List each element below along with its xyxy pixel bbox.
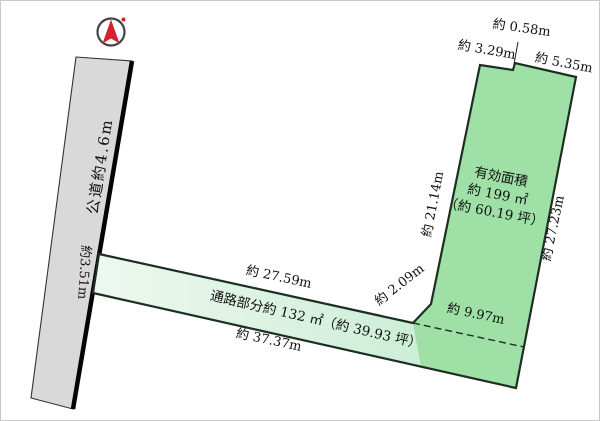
dim-top-left-label: 約 3.29m <box>457 38 517 63</box>
north-compass-icon <box>98 18 126 46</box>
diagram-svg: 公道約4.6m 約3.51m 約 0.58m 約 3.29m 約 5.35m 約… <box>1 1 600 421</box>
dim-top-step-label: 約 0.58m <box>492 17 552 40</box>
land-plot-diagram: 公道約4.6m 約3.51m 約 0.58m 約 3.29m 約 5.35m 約… <box>0 0 600 421</box>
dim-connector-label: 約 2.09m <box>372 261 427 309</box>
dim-left-edge-label: 約 21.14m <box>420 170 447 238</box>
